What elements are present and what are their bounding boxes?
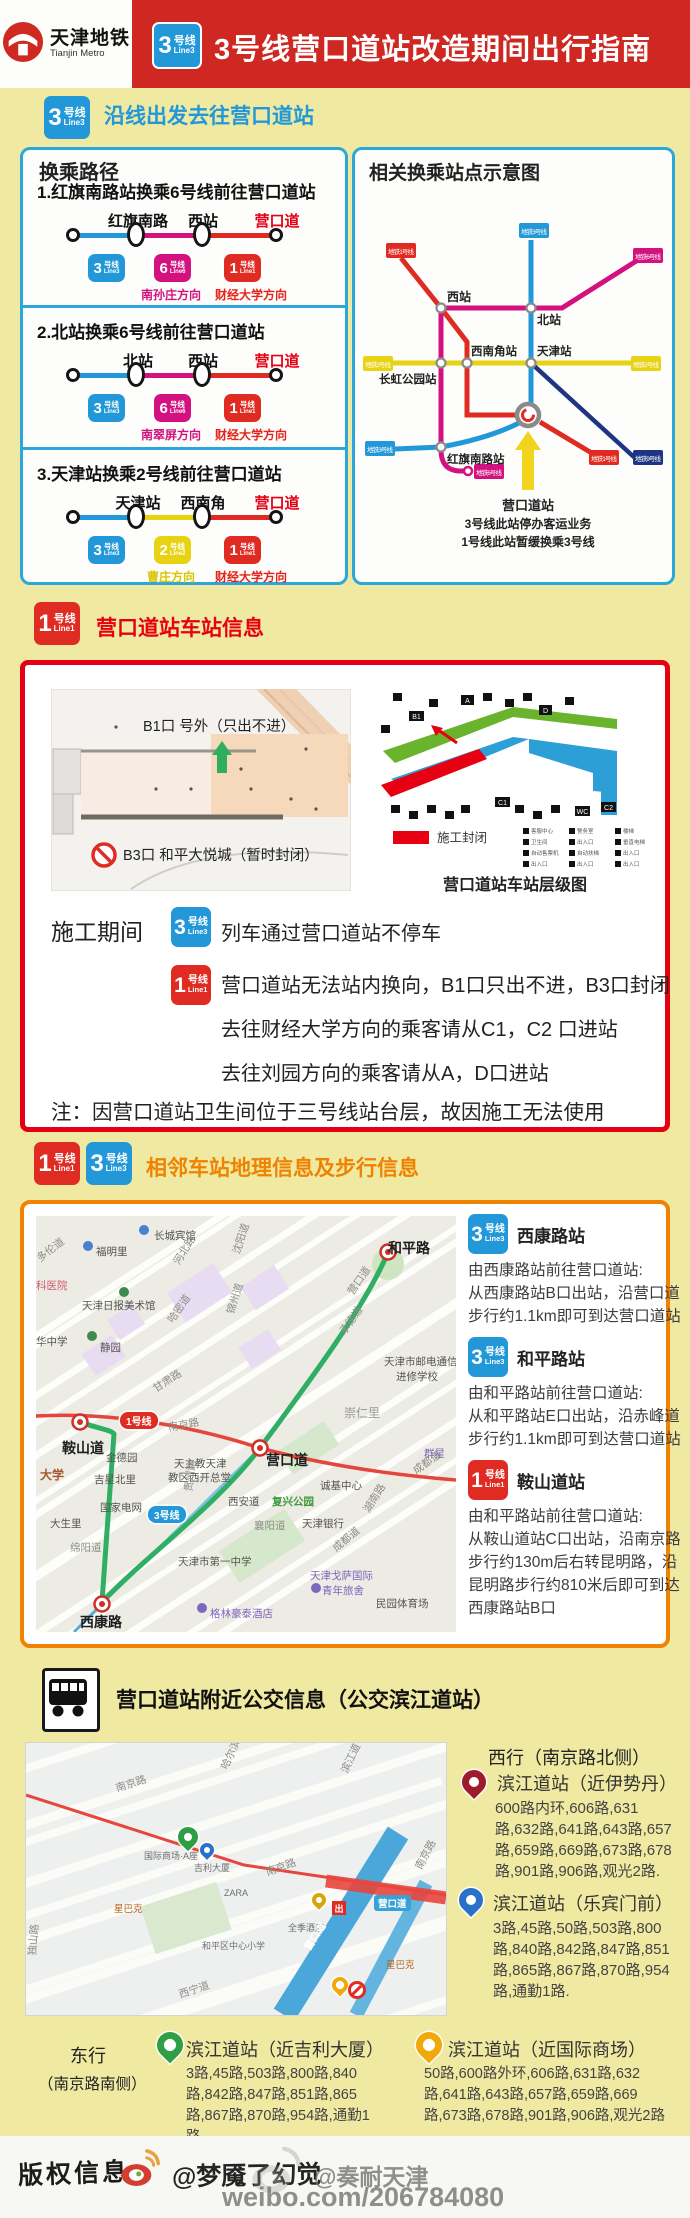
map-label: 吉利大厦 — [194, 1861, 230, 1874]
map-label: 国家电网 — [100, 1500, 142, 1515]
line1-badge: 1号线Line1 — [224, 394, 261, 422]
map-label: 南京路 — [167, 1415, 201, 1435]
map-label: 襄阳道 — [254, 1518, 286, 1533]
walk-text: 西康路站B口 — [468, 1597, 664, 1620]
map-label: 独山路 — [25, 1923, 42, 1956]
legend-label: 施工封闭 — [437, 831, 487, 845]
tianjin-metro-logo-icon — [2, 21, 44, 68]
line-endcap: 地铁2号线 — [631, 356, 661, 371]
map-label: 国际商场·A座 — [144, 1849, 198, 1862]
line-endcap: 地铁9号线 — [633, 450, 663, 465]
line1-badge: 1号线Line1 — [224, 254, 261, 282]
terminus-dot — [269, 228, 283, 242]
stop-name: 滨江道站（近吉利大厦） — [186, 2036, 384, 2062]
map-label: 承德道 — [336, 1303, 366, 1337]
schematic-metro-map: 地铁1号线 地铁3号线 地铁6号线 地铁2号线 地铁2号线 地铁3号线 地铁6号… — [355, 182, 672, 582]
walk-entry-xikanglu: 3号线Line3 西康路站 由西康路站前往营口道站: 从西康路站B口出站，沿营口… — [468, 1214, 664, 1328]
section-title-walk-info: 相邻车站地理信息及步行信息 — [146, 1152, 419, 1182]
walk-text: 步行约1.1km即可到达营口道站 — [468, 1428, 664, 1451]
transfer-routes-box: 换乘路径 1.红旗南路站换乘6号线前往营口道站 红旗南路 西站 营口道 3号线L… — [20, 147, 348, 585]
transfer-route-3: 3.天津站换乘2号线前往营口道站 天津站 西南角 营口道 3号线Line3 2号… — [23, 460, 345, 592]
transfer-route-1: 1.红旗南路站换乘6号线前往营口道站 红旗南路 西站 营口道 3号线Line3 … — [23, 178, 345, 310]
map-label: 甘肃路 — [150, 1366, 185, 1396]
map-label: 鞍山道 — [62, 1438, 104, 1458]
route-title: 1.红旗南路站换乘6号线前往营口道站 — [37, 178, 316, 203]
map-label: 民园体育场 — [376, 1596, 429, 1611]
route-title: 3.天津站换乘2号线前往营口道站 — [37, 460, 282, 485]
section-title-depart: 沿线出发去往营口道站 — [104, 100, 314, 130]
legend-item: 出入口 — [569, 858, 615, 869]
eastbound-label: 东行 — [70, 2042, 106, 2068]
line3-badge: 3号线Line3 — [468, 1214, 508, 1254]
arrow-up-icon — [515, 431, 541, 490]
legend-item: 自动售票机 — [523, 847, 569, 858]
station-floorplan: B1口 号外（只出不进） B3口 和平大悦城（暂时封闭） — [51, 689, 351, 891]
map-label: 天津戈萨国际 — [310, 1568, 373, 1583]
street-map: 长城宾馆福明里多伦道河北路沈阳道和平路科医院天津日报美术馆静园锦州道哈密道华中学… — [36, 1216, 456, 1632]
line-endcap: 地铁6号线 — [633, 248, 663, 263]
page-title: 3号线营口道站改造期间出行指南 — [214, 26, 651, 68]
map-label: 西安道 — [228, 1494, 260, 1509]
eastbound-sublabel: （南京路南侧） — [38, 2072, 147, 2094]
exit-sign: 出 — [332, 1901, 346, 1915]
direction-label: 南翠屏方向 — [141, 426, 201, 443]
legend-item: 垂直电梯 — [615, 836, 661, 847]
toilet-note: 注：因营口道站卫生间位于三号线站台层，故因施工无法使用 — [51, 1095, 605, 1125]
map-label: 营口道 — [344, 1263, 374, 1297]
bus-map-labels: 南京路哈尔滨道滨江道国际商场·A座吉利大厦ZARA星巴克南京路南京路全季酒店和平… — [26, 1743, 446, 2015]
map-label: 成都道 — [410, 1447, 444, 1477]
line3-badge: 3号线Line3 — [468, 1337, 508, 1377]
no-entry-icon — [93, 844, 115, 866]
legend-item: 出入口 — [615, 858, 661, 869]
terminus-dot — [66, 510, 80, 524]
level-legend-grid: 客服中心警务室楼梯卫生间出入口垂直电梯自动售票机自动扶梯出入口出入口出入口出入口 — [523, 825, 663, 869]
map-label: 南京路 — [263, 1855, 298, 1880]
terminus-dot — [66, 228, 80, 242]
infographic-page: 天津地铁 Tianjin Metro 3 号线Line3 3号线营口道站改造期间… — [0, 0, 690, 2218]
map-label: 锦州道 — [223, 1281, 247, 1316]
stop-pin-green — [152, 2027, 189, 2064]
station-name: 鞍山道站 — [517, 1468, 585, 1493]
walk-text: 步行约1.1km即可到达营口道站 — [468, 1305, 664, 1328]
map-label: 西宁道 — [177, 1978, 212, 2002]
svg-text:地铁1号线: 地铁1号线 — [591, 454, 618, 463]
line6-badge: 6号线Line6 — [154, 394, 191, 422]
stop-routes: 3路,45路,50路,503路,800路,840路,842路,847路,851路… — [493, 1918, 671, 2002]
exit-b1-label: B1口 号外（只出不进） — [143, 718, 295, 735]
map-label: 南京路 — [411, 1837, 439, 1872]
map-label: 贵州路 — [181, 1459, 200, 1492]
stop-routes: 600路内环,606路,631路,632路,641路,643路,657路,659… — [495, 1798, 673, 1882]
legend-item: 警务室 — [569, 825, 615, 836]
line-endcap: 地铁3号线 — [365, 441, 395, 456]
svg-text:地铁2号线: 地铁2号线 — [633, 360, 660, 369]
walk-text: 步行约130m后右转昆明路，沿 — [468, 1551, 664, 1574]
weibo-icon — [118, 2144, 164, 2195]
line3-badge: 3号线Line3 — [171, 907, 211, 947]
station-name: 和平路站 — [517, 1345, 585, 1370]
svg-text:地铁3号线: 地铁3号线 — [367, 445, 394, 454]
map-label: 格林豪泰酒店 — [210, 1606, 273, 1621]
map-label: 教区西开总堂 — [168, 1470, 231, 1485]
map-label: 多伦道 — [36, 1234, 67, 1265]
map-label: 天津市邮电通信 — [384, 1354, 456, 1369]
map-label: 沈阳道 — [229, 1221, 253, 1256]
map-label: 绵阳道 — [70, 1540, 102, 1555]
direction-label: 曹庄方向 — [147, 568, 195, 585]
map-label: 哈尔滨道 — [217, 1742, 248, 1772]
line-endcap: 地铁1号线 — [386, 243, 416, 258]
map-label: 科医院 — [36, 1278, 68, 1293]
svg-text:D: D — [543, 708, 548, 715]
line1-notice-2: 去往财经大学方向的乘客请从C1，C2 口进站 — [221, 1013, 618, 1042]
note-line: 1号线此站暂缓换乘3号线 — [461, 534, 594, 549]
svg-text:地铁6号线: 地铁6号线 — [476, 468, 503, 477]
walk-text: 昆明路步行约810米后即可到达 — [468, 1574, 664, 1597]
footer: 版权信息 @梦魇了幻觉 @奏耐天津 weibo.com/206784080 — [0, 2136, 690, 2218]
map-label: 天主教天津 — [174, 1456, 227, 1471]
svg-text:地铁6号线: 地铁6号线 — [635, 252, 662, 261]
interchange-marker — [127, 504, 145, 529]
map-label: 滨江道 — [337, 1742, 364, 1776]
map-label: 南京路 — [114, 1772, 149, 1796]
line1-badge: 1号线Line1 — [34, 1142, 80, 1185]
line6-badge: 6号线Line6 — [154, 254, 191, 282]
svg-text:地铁2号线: 地铁2号线 — [365, 360, 392, 369]
walk-info-box: 长城宾馆福明里多伦道河北路沈阳道和平路科医院天津日报美术馆静园锦州道哈密道华中学… — [20, 1200, 670, 1648]
station-label: 北站 — [537, 312, 561, 327]
map-label: 和平路 — [388, 1238, 430, 1258]
line3-badge: 3 号线Line3 — [44, 96, 90, 139]
station-name: 西康路站 — [517, 1222, 585, 1247]
yingkoudao-station-pill: 营口道 — [374, 1895, 411, 1911]
westbound-label: 西行（南京路北侧） — [488, 1744, 650, 1770]
station-label: 西站 — [447, 289, 471, 304]
direction-label: 财经大学方向 — [215, 286, 287, 303]
stop-name: 滨江道站（近伊势丹） — [497, 1770, 677, 1796]
legend-item: 自动扶梯 — [569, 847, 615, 858]
schematic-title: 相关换乘站点示意图 — [369, 158, 540, 185]
map-label: 崇仁里 — [344, 1404, 380, 1421]
schematic-map-box: 相关换乘站点示意图 — [352, 147, 675, 585]
stop-name: 滨江道站（乐宾门前） — [493, 1890, 673, 1916]
line3-badge: 3号线Line3 — [88, 394, 125, 422]
note-line: 3号线此站停办客运业务 — [465, 516, 593, 531]
svg-text:C2: C2 — [604, 805, 613, 812]
legend-item: 客服中心 — [523, 825, 569, 836]
map-label: 福明里 — [96, 1244, 128, 1259]
direction-label: 南孙庄方向 — [141, 286, 201, 303]
legend-item: 楼梯 — [615, 825, 661, 836]
line1-badge: 1号线Line1 — [34, 602, 80, 645]
terminus-dot — [66, 368, 80, 382]
svg-text:WC: WC — [577, 809, 589, 816]
line-endcap: 地铁1号线 — [589, 450, 619, 465]
line-endcap: 地铁3号线 — [519, 223, 549, 238]
map-label: 天津市第一中学 — [178, 1554, 252, 1569]
bus-map: 南京路哈尔滨道滨江道国际商场·A座吉利大厦ZARA星巴克南京路南京路全季酒店和平… — [25, 1742, 447, 2016]
map-label: 西康路 — [80, 1612, 122, 1632]
station-label: 红旗南路站 — [447, 452, 505, 466]
map-label: 金德园 — [106, 1450, 138, 1465]
note-line: 营口道站 — [502, 498, 554, 513]
map-label: 哈密道 — [164, 1291, 194, 1325]
station-label: 天津站 — [537, 344, 572, 358]
station-info-box: B1口 号外（只出不进） B3口 和平大悦城（暂时封闭） — [20, 660, 670, 1132]
line3-map-pill: 3号线 — [148, 1506, 186, 1523]
stop-pin-yellow — [411, 2027, 448, 2064]
line3-notice: 列车通过营口道站不停车 — [221, 917, 441, 946]
line1-segment — [203, 233, 276, 238]
line1-notice-3: 去往刘园方向的乘客请从A，D口进站 — [221, 1057, 549, 1086]
walk-text: 从和平路站E口出站，沿赤峰道 — [468, 1405, 664, 1428]
map-label: 和平区中心小学 — [202, 1939, 265, 1952]
map-label: 星巴克 — [114, 1901, 143, 1915]
watermark-url: weibo.com/206784080 — [222, 2182, 504, 2213]
map-label: 大生里 — [50, 1516, 82, 1531]
interchange-marker — [127, 222, 145, 247]
line3-badge: 3号线Line3 — [86, 1142, 132, 1185]
stop-pin-blue — [454, 1883, 488, 1917]
exit-b3-label: B3口 和平大悦城（暂时封闭） — [123, 847, 319, 864]
line1-map-pill: 1号线 — [120, 1412, 158, 1429]
direction-label: 财经大学方向 — [215, 426, 287, 443]
legend-item: 卫生间 — [523, 836, 569, 847]
map-label: 诚基中心 — [320, 1478, 362, 1493]
interchange-marker — [193, 362, 211, 387]
legend-item: 出入口 — [569, 836, 615, 847]
map-label: 湖南路 — [360, 1481, 389, 1516]
svg-text:A: A — [465, 698, 470, 705]
svg-text:地铁9号线: 地铁9号线 — [635, 454, 662, 463]
line2-badge: 2号线Line2 — [154, 536, 191, 564]
svg-text:地铁1号线: 地铁1号线 — [388, 247, 415, 256]
walk-text: 由西康路站前往营口道站: — [468, 1259, 664, 1282]
bus-icon — [42, 1668, 100, 1732]
map-label: 静园 — [100, 1340, 121, 1355]
interchange-marker — [127, 362, 145, 387]
brand-block: 天津地铁 Tianjin Metro — [0, 0, 132, 88]
stop-pin-darkred — [457, 1765, 491, 1799]
walk-text: 由和平路站前往营口道站: — [468, 1382, 664, 1405]
direction-label: 财经大学方向 — [215, 568, 287, 585]
walk-entry-anshandao: 1号线Line1 鞍山道站 由和平路站前往营口道站: 从鞍山道站C口出站，沿南京… — [468, 1460, 664, 1620]
brand-cn: 天津地铁 — [50, 28, 130, 50]
construction-label: 施工期间 — [51, 913, 143, 947]
map-label: 天津日报美术馆 — [82, 1298, 156, 1313]
legend-swatch — [393, 831, 429, 844]
walk-text: 由和平路站前往营口道站: — [468, 1505, 664, 1528]
line3-badge: 3号线Line3 — [88, 536, 125, 564]
line1-badge: 1号线Line1 — [468, 1460, 508, 1500]
line3-badge: 3 号线Line3 — [152, 22, 202, 69]
line1-segment — [203, 515, 276, 520]
map-label: 天津银行 — [302, 1516, 344, 1531]
map-label: ZARA — [224, 1888, 248, 1898]
line-endcap: 地铁2号线 — [363, 356, 393, 371]
map-label: 进修学校 — [396, 1369, 438, 1384]
map-label: 营口道 — [266, 1450, 308, 1470]
map-label: 吉星北里 — [94, 1472, 136, 1487]
map-label: 大学 — [40, 1466, 64, 1483]
line-endcap: 地铁6号线 — [474, 464, 504, 479]
line1-segment — [203, 373, 276, 378]
terminus-dot — [269, 510, 283, 524]
line1-notice-1: 营口道站无法站内换向，B1口只出不进，B3口封闭 — [221, 969, 670, 998]
interchange-marker — [193, 222, 211, 247]
map-label: 华中学 — [36, 1334, 68, 1349]
line1-badge: 1号线Line1 — [224, 536, 261, 564]
brand-en: Tianjin Metro — [50, 49, 130, 60]
station-label: 长虹公园站 — [379, 372, 437, 386]
street-map-labels: 长城宾馆福明里多伦道河北路沈阳道和平路科医院天津日报美术馆静园锦州道哈密道华中学… — [36, 1216, 456, 1632]
transfer-route-2: 2.北站换乘6号线前往营口道站 北站 西站 营口道 3号线Line3 6号线Li… — [23, 318, 345, 450]
map-label: 复兴公园 — [272, 1494, 314, 1509]
no-entry-icon — [348, 1981, 366, 1999]
stop-routes: 50路,600路外环,606路,631路,632路,641路,643路,657路… — [424, 2064, 678, 2127]
interchange-marker — [193, 504, 211, 529]
map-label: 星巴克 — [386, 1957, 415, 1971]
svg-text:地铁3号线: 地铁3号线 — [521, 227, 548, 236]
walk-text: 从鞍山道站C口出站，沿南京路 — [468, 1528, 664, 1551]
map-label: 青年旅舍 — [322, 1583, 364, 1598]
stop-name: 滨江道站（近国际商场） — [448, 2036, 646, 2062]
station-label: 西南角站 — [471, 344, 517, 358]
walk-entry-hepinglu: 3号线Line3 和平路站 由和平路站前往营口道站: 从和平路站E口出站，沿赤峰… — [468, 1337, 664, 1451]
legend-item: 出入口 — [523, 858, 569, 869]
line3-badge: 3号线Line3 — [88, 254, 125, 282]
svg-text:B1: B1 — [412, 714, 421, 721]
section-title-station-info: 营口道站车站信息 — [96, 612, 264, 642]
bus-section-title: 营口道站附近公交信息（公交滨江道站） — [116, 1684, 494, 1714]
route-title: 2.北站换乘6号线前往营口道站 — [37, 318, 265, 343]
legend-item: 出入口 — [615, 847, 661, 858]
walk-entries: 3号线Line3 西康路站 由西康路站前往营口道站: 从西康路站B口出站，沿营口… — [468, 1214, 664, 1629]
terminus-dot — [269, 368, 283, 382]
line1-badge: 1号线Line1 — [171, 965, 211, 1005]
level-caption: 营口道站车站层级图 — [365, 871, 665, 895]
walk-text: 从西康路站B口出站，沿营口道 — [468, 1282, 664, 1305]
copyright-label: 版权信息 — [17, 2152, 130, 2192]
svg-text:C1: C1 — [498, 800, 507, 807]
